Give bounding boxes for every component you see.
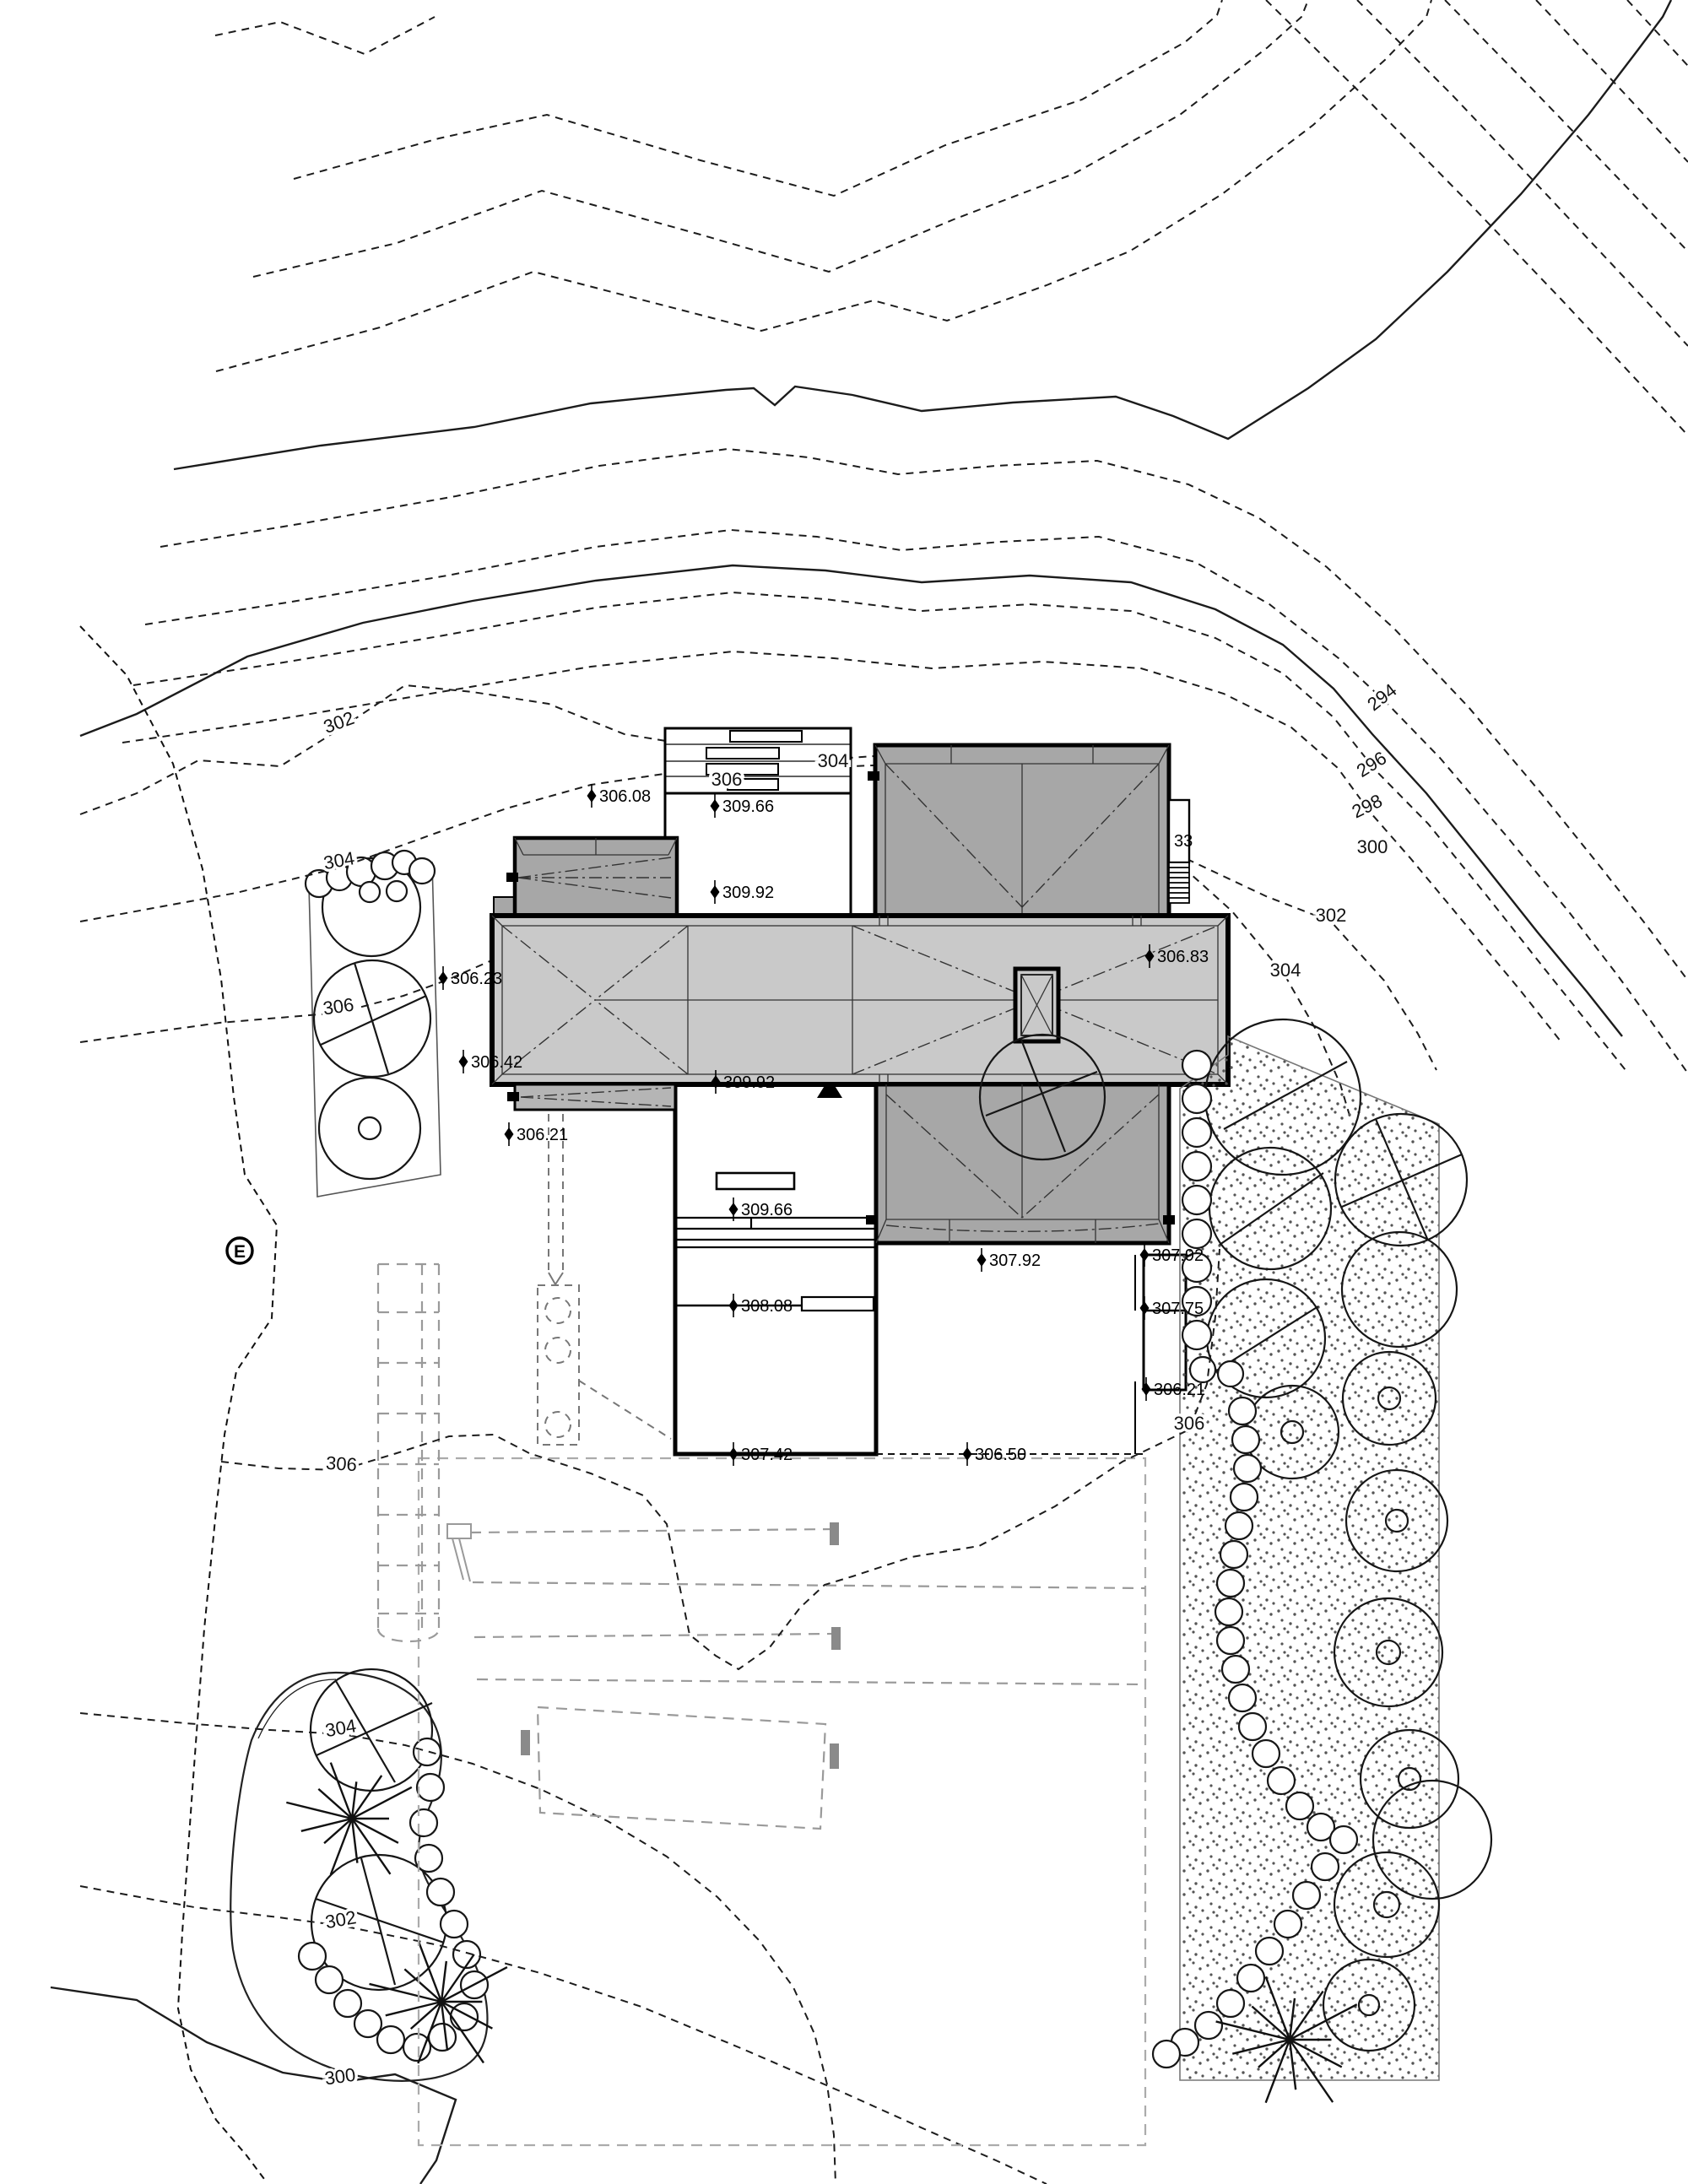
- contour-label: 300: [323, 2064, 357, 2089]
- shrub-icon: [1229, 1397, 1256, 1424]
- shrub-icon: [1234, 1455, 1261, 1482]
- contour-label: 306: [322, 994, 355, 1019]
- shrub-icon: [1182, 1051, 1211, 1079]
- shrub-icon: [1182, 1152, 1211, 1181]
- shrub-icon: [1182, 1118, 1211, 1147]
- spot-elevation-value: 306.23: [451, 970, 502, 988]
- skylight: [1015, 969, 1058, 1041]
- spot-elevation-value: 309.92: [723, 1073, 775, 1092]
- spot-elevation-value: 306.21: [1154, 1381, 1205, 1399]
- shrub-icon: [299, 1943, 326, 1970]
- side-note-label: 33: [1174, 832, 1193, 851]
- shrub-icon: [427, 1879, 454, 1906]
- shrub-icon: [441, 1911, 468, 1938]
- contour-label: 304: [1270, 960, 1301, 981]
- spot-elevation: 306.21: [505, 1122, 569, 1146]
- shrub-icon: [1182, 1084, 1211, 1113]
- shrub-icon: [1195, 2012, 1222, 2039]
- north-building: [868, 745, 1189, 916]
- shrub-icon: [387, 881, 407, 901]
- contour-label: 304: [818, 750, 849, 771]
- shrub-icon: [1286, 1792, 1313, 1819]
- site-plan-canvas: 306.08309.66309.92306.23306.42306.21309.…: [0, 0, 1688, 2184]
- stipple-area: [1180, 1036, 1439, 2080]
- spot-elevation-value: 306.42: [471, 1053, 522, 1072]
- shrub-icon: [1330, 1826, 1357, 1853]
- shrub-icon: [360, 882, 380, 902]
- shrub-icon: [451, 2003, 478, 2030]
- contour-label: 300: [1357, 836, 1388, 857]
- spot-elevation-value: 307.42: [741, 1446, 793, 1464]
- spot-elevation-value: 307.92: [1152, 1246, 1204, 1265]
- shrub-icon: [1182, 1321, 1211, 1349]
- datum-marker: E: [227, 1238, 252, 1263]
- contour-label: 296: [1353, 747, 1390, 781]
- west-planting-bed: [306, 851, 441, 1197]
- shrub-icon: [1220, 1541, 1247, 1568]
- shrub-icon: [1274, 1911, 1301, 1938]
- shrub-icon: [1293, 1882, 1320, 1909]
- shrub-icon: [334, 1990, 361, 2017]
- path-to-planter: [538, 1114, 671, 1445]
- shrub-icon: [377, 2026, 404, 2053]
- shrub-icon: [316, 1966, 343, 1993]
- shrub-icon: [417, 1774, 444, 1801]
- shrub-icon: [1182, 1219, 1211, 1248]
- contour-label: 306: [711, 769, 743, 790]
- contour-label: 306: [1174, 1413, 1205, 1434]
- contour-label: 298: [1349, 790, 1386, 823]
- shrub-icon: [429, 2024, 456, 2051]
- contour-label: 294: [1363, 679, 1400, 715]
- bench: [717, 1173, 794, 1189]
- spot-elevation-value: 306.21: [517, 1126, 568, 1144]
- side-landing: [1169, 800, 1189, 862]
- datum-label: E: [234, 1242, 246, 1262]
- contour-label: 306: [325, 1452, 357, 1476]
- spot-elevation-value: 306.50: [975, 1446, 1026, 1464]
- shrub-icon: [414, 1738, 441, 1765]
- shrub-icon: [1217, 1627, 1244, 1654]
- porch: [507, 1084, 675, 1110]
- shrub-icon: [354, 2010, 381, 2037]
- court-outline: [538, 1707, 825, 1829]
- spot-elevation-value: 309.66: [741, 1201, 793, 1219]
- spot-elevation: 307.92: [977, 1248, 1041, 1272]
- main-building: [492, 916, 1228, 1084]
- shrub-icon: [1153, 2041, 1180, 2068]
- shrub-icon: [1215, 1598, 1242, 1625]
- shrub-icon: [410, 1809, 437, 1836]
- shrub-icon: [1312, 1853, 1339, 1880]
- shrub-icon: [1182, 1186, 1211, 1214]
- shrub-icon: [1217, 1990, 1244, 2017]
- side-steps: [1169, 862, 1189, 903]
- shrub-icon: [1252, 1740, 1280, 1767]
- shrub-icon: [403, 2034, 430, 2061]
- guide-end-bars: [521, 1522, 841, 1769]
- spot-elevation-value: 308.08: [741, 1297, 793, 1316]
- shrub-icon: [1239, 1713, 1266, 1740]
- shrub-icon: [1229, 1684, 1256, 1711]
- spot-elevation: 306.08: [587, 784, 652, 808]
- spot-elevation-value: 306.08: [599, 787, 651, 806]
- stepped-walkway: [378, 1264, 439, 1641]
- south-building: [866, 1084, 1175, 1243]
- garage-wing: [494, 838, 677, 916]
- spot-elevation-value: 307.75: [1152, 1300, 1204, 1318]
- shrub-icon: [409, 858, 435, 884]
- shrub-icon: [1237, 1965, 1264, 1992]
- spot-elevation-value: 307.92: [989, 1251, 1041, 1270]
- spot-elevation-value: 309.66: [722, 797, 774, 816]
- site-plan-sheet: 306.08309.66309.92306.23306.42306.21309.…: [0, 0, 1688, 2184]
- shrub-icon: [1190, 1357, 1215, 1382]
- shrub-icon: [1217, 1570, 1244, 1597]
- shrub-icon: [1222, 1656, 1249, 1683]
- contour-label: 302: [1316, 905, 1347, 926]
- spot-elevation: 306.23: [439, 966, 503, 990]
- spot-elevation: 306.42: [459, 1050, 523, 1073]
- shrub-icon: [1231, 1484, 1258, 1511]
- shrub-icon: [1232, 1426, 1259, 1453]
- spot-elevation-value: 306.83: [1157, 948, 1209, 966]
- shrub-icon: [1218, 1361, 1243, 1387]
- spot-elevation-value: 309.92: [722, 884, 774, 902]
- southwest-planting-bed: [230, 1669, 507, 2081]
- shrub-icon: [1256, 1938, 1283, 1965]
- shrub-icon: [1268, 1767, 1295, 1794]
- shrub-icon: [1225, 1512, 1252, 1539]
